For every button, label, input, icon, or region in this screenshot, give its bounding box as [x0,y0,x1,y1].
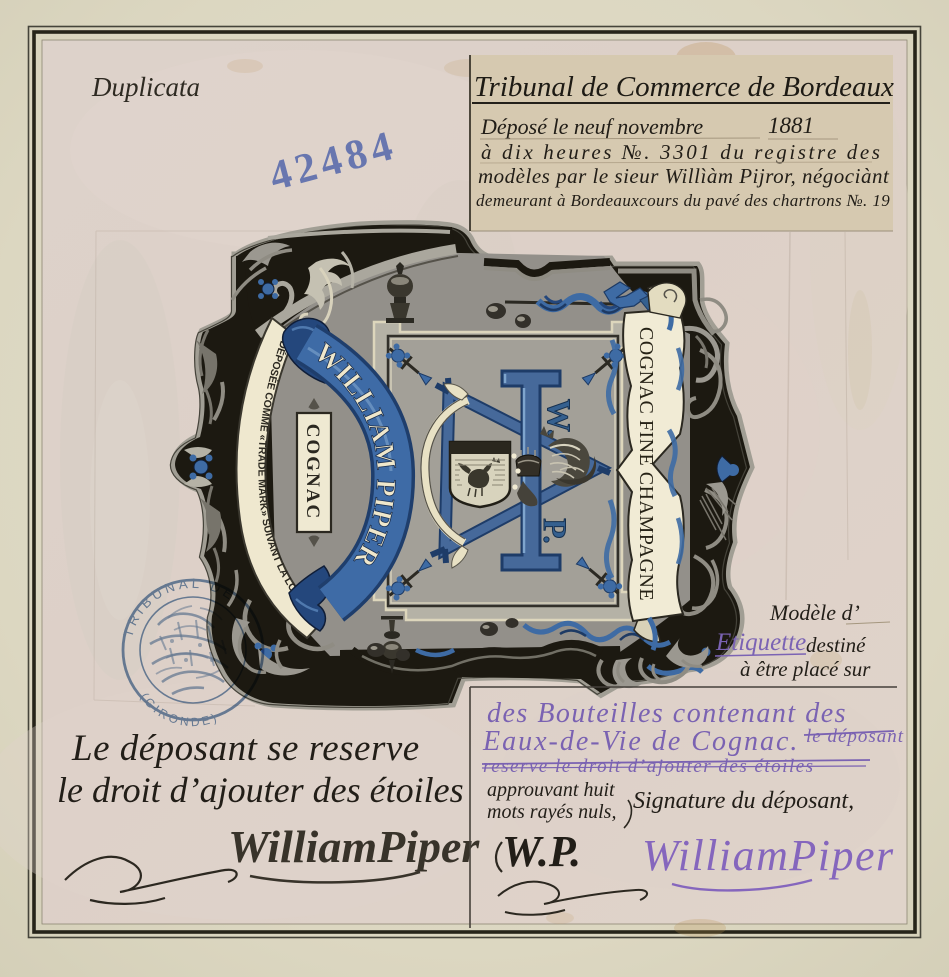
svg-text:WilliamPiper: WilliamPiper [228,821,480,872]
svg-text:Signature du déposant,: Signature du déposant, [633,788,854,814]
svg-text:le déposant: le déposant [806,726,904,747]
svg-text:Duplicata: Duplicata [91,72,200,102]
svg-text:destiné: destiné [806,633,867,657]
svg-text:à dix heures №. 3301 du regis: à dix heures №. 3301 du registre des [481,140,883,164]
svg-text:le droit d’ajouter des étoiles: le droit d’ajouter des étoiles [57,770,464,810]
svg-text:WilliamPiper: WilliamPiper [642,831,895,880]
svg-text:modèles par le sieur Willìàm P: modèles par le sieur Willìàm Pijror, nég… [478,164,890,188]
svg-text:W.P.: W.P. [502,827,581,876]
svg-text:P.: P. [536,518,572,543]
svg-text:Le déposant se reserve: Le déposant se reserve [71,728,420,769]
svg-text:des Bouteilles contenant des: des Bouteilles contenant des [487,698,847,729]
svg-text:1881: 1881 [768,113,814,138]
svg-text:Eaux-de-Vie de Cognac.: Eaux-de-Vie de Cognac. [482,726,799,757]
svg-text:COGNAC: COGNAC [302,424,323,520]
svg-text:Tribunal de Commerce de Bordea: Tribunal de Commerce de Bordeaux [474,71,894,103]
svg-text:Déposé le neuf novembre: Déposé le neuf novembre [480,114,703,139]
svg-text:approuvant huit: approuvant huit [487,779,615,801]
svg-text:Etiquette: Etiquette [715,629,806,656]
svg-text:Modèle d’: Modèle d’ [769,600,860,625]
svg-text:demeurant à Bordeauxcours du p: demeurant à Bordeauxcours du pavé des ch… [476,191,890,210]
svg-text:COGNAC FINE CHAMPAGNE: COGNAC FINE CHAMPAGNE [635,327,657,601]
svg-text:à être placé sur: à être placé sur [740,657,871,681]
svg-text:mots rayés nuls,: mots rayés nuls, [487,801,616,823]
